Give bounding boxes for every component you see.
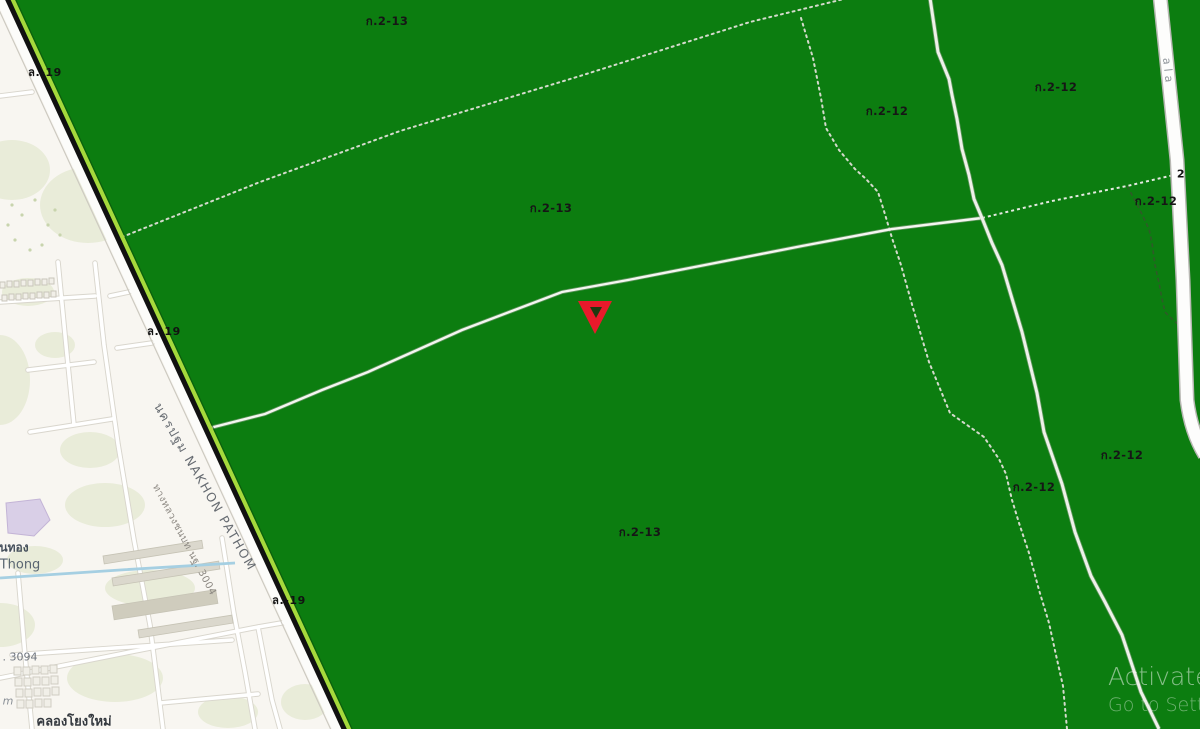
map-viewport[interactable]: ก.2-13 ก.2-12 ก.2-12 ก.2-13 ก.2-12 ก.2-1… (0, 0, 1200, 729)
map-canvas[interactable] (0, 0, 1200, 729)
zone-green-area (7, 0, 1200, 729)
lavender-building (6, 499, 50, 536)
zoning-layer (7, 0, 1200, 729)
housing-grid (14, 665, 59, 708)
